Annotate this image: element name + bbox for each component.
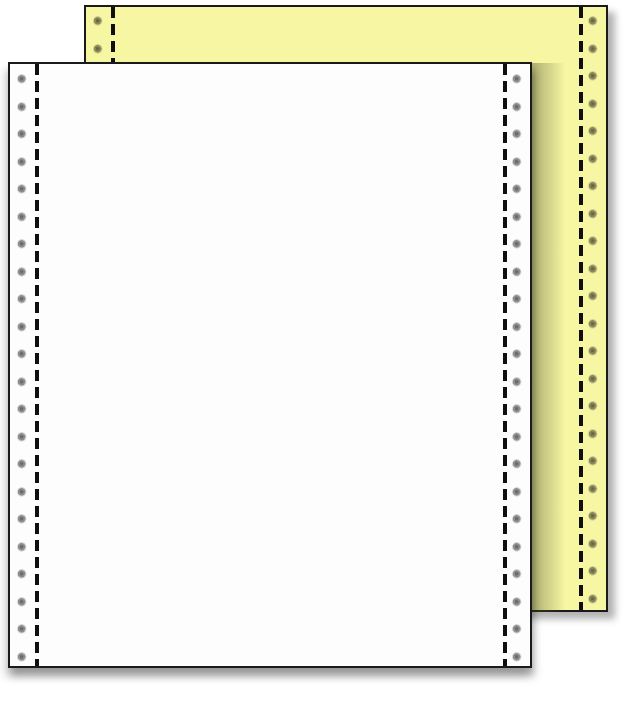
sprocket-hole (17, 624, 27, 634)
sprocket-hole (512, 102, 522, 112)
sprocket-hole (588, 181, 598, 191)
sprocket-hole (512, 597, 522, 607)
sprocket-hole (512, 542, 522, 552)
sprocket-hole (17, 432, 27, 442)
sprocket-hole (588, 209, 598, 219)
sprocket-hole (588, 154, 598, 164)
white-sheet-cast-shadow (531, 63, 565, 612)
product-photo-canvas (0, 0, 640, 705)
sprocket-hole (512, 487, 522, 497)
sprocket-hole (512, 157, 522, 167)
sprocket-hole (512, 129, 522, 139)
sprocket-hole (17, 239, 27, 249)
sprocket-hole (588, 44, 598, 54)
sprocket-hole (588, 71, 598, 81)
sprocket-hole (588, 264, 598, 274)
sprocket-hole (17, 102, 27, 112)
tractor-feed-holes-right (512, 74, 522, 666)
tractor-feed-holes-right (588, 16, 598, 610)
perforation-line-right (503, 64, 507, 666)
sprocket-hole (512, 432, 522, 442)
sprocket-hole (588, 319, 598, 329)
sprocket-hole (17, 294, 27, 304)
sprocket-hole (588, 401, 598, 411)
perforation-line-right (579, 7, 583, 610)
sprocket-hole (588, 429, 598, 439)
sprocket-hole (512, 404, 522, 414)
sprocket-hole (512, 74, 522, 84)
sprocket-hole (512, 267, 522, 277)
sprocket-hole (17, 487, 27, 497)
tractor-feed-holes-left (17, 74, 27, 666)
sprocket-hole (17, 129, 27, 139)
sprocket-hole (588, 594, 598, 604)
sprocket-hole (17, 377, 27, 387)
sprocket-hole (17, 184, 27, 194)
sprocket-hole (17, 74, 27, 84)
sprocket-hole (512, 294, 522, 304)
sprocket-hole (512, 239, 522, 249)
sprocket-hole (512, 322, 522, 332)
sprocket-hole (17, 569, 27, 579)
sprocket-hole (588, 456, 598, 466)
sprocket-hole (588, 374, 598, 384)
sprocket-hole (512, 212, 522, 222)
sprocket-hole (17, 349, 27, 359)
perforation-line-left (35, 64, 39, 666)
sprocket-hole (512, 624, 522, 634)
sprocket-hole (512, 652, 522, 662)
sprocket-hole (588, 16, 598, 26)
sprocket-hole (93, 44, 103, 54)
sprocket-hole (17, 404, 27, 414)
sprocket-hole (512, 514, 522, 524)
sprocket-hole (588, 126, 598, 136)
sprocket-hole (512, 184, 522, 194)
sprocket-hole (512, 377, 522, 387)
sprocket-hole (512, 349, 522, 359)
sprocket-hole (17, 514, 27, 524)
sprocket-hole (17, 157, 27, 167)
sprocket-hole (588, 346, 598, 356)
sprocket-hole (588, 511, 598, 521)
sprocket-hole (17, 597, 27, 607)
sprocket-hole (17, 542, 27, 552)
sprocket-hole (17, 652, 27, 662)
sprocket-hole (17, 212, 27, 222)
sprocket-hole (588, 539, 598, 549)
sprocket-hole (588, 484, 598, 494)
sprocket-hole (17, 459, 27, 469)
white-paper-sheet (8, 62, 532, 668)
sprocket-hole (17, 322, 27, 332)
sprocket-hole (17, 267, 27, 277)
sprocket-hole (93, 16, 103, 26)
sprocket-hole (588, 566, 598, 576)
sprocket-hole (588, 236, 598, 246)
sprocket-hole (512, 459, 522, 469)
sprocket-hole (588, 291, 598, 301)
sprocket-hole (512, 569, 522, 579)
sprocket-hole (588, 99, 598, 109)
